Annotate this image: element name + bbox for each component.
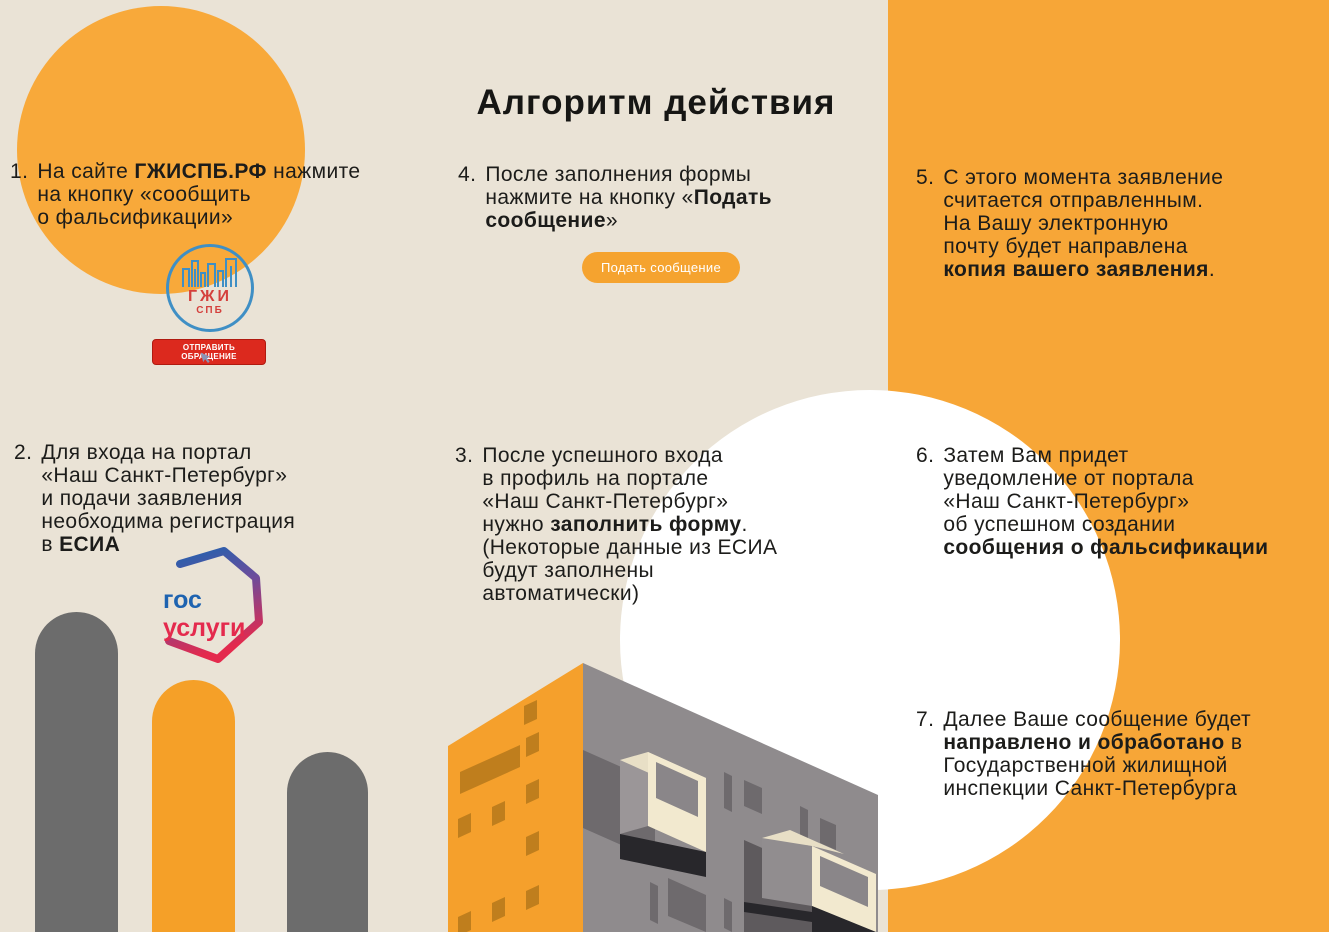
step-text: Для входа на портал«Наш Санкт-Петербург»… [41,441,295,556]
chart-bar-gray-2 [287,752,368,932]
step-1: 1. На сайте ГЖИСПБ.РФ нажмитена кнопку «… [10,160,450,229]
step-number: 7. [916,708,934,800]
step-2: 2. Для входа на портал«Наш Санкт-Петербу… [14,441,414,556]
step-text: Далее Ваше сообщение будетнаправлено и о… [943,708,1251,800]
step-text: После заполнения формынажмите на кнопку … [485,163,772,232]
gzhi-logo-title: ГЖИ [169,288,251,305]
gzhi-logo-subtitle: СПБ [169,305,251,316]
step-text: С этого момента заявлениесчитается отпра… [943,166,1223,281]
cursor-icon [201,351,213,364]
building-orange-face [448,663,583,932]
decorative-orange-circle [17,6,305,294]
step-3: 3. После успешного входав профиль на пор… [455,444,875,605]
chart-bar-orange [152,680,235,932]
gzhi-spb-logo: ГЖИ СПБ [166,244,254,332]
gosuslugi-logo: гос услуги [146,546,266,666]
gosuslugi-text-line1: гос [163,586,202,614]
step-6: 6. Затем Вам придетуведомление от портал… [916,444,1326,559]
step-number: 6. [916,444,934,559]
step-number: 4. [458,163,476,232]
gosuslugi-text-line2: услуги [163,614,245,642]
submit-message-button[interactable]: Подать сообщение [582,252,740,283]
step-number: 2. [14,441,32,556]
step-number: 5. [916,166,934,281]
step-text: Затем Вам придетуведомление от портала«Н… [943,444,1268,559]
city-skyline-icon [181,256,239,288]
chart-bar-gray-1 [35,612,118,932]
step-number: 3. [455,444,473,605]
step-5: 5. С этого момента заявлениесчитается от… [916,166,1326,281]
step-7: 7. Далее Ваше сообщение будетнаправлено … [916,708,1326,800]
step-number: 1. [10,160,28,229]
building-gray-face [583,663,878,932]
infographic-page: Алгоритм действия 1. На сайте ГЖИСПБ.РФ … [0,0,1329,932]
building-illustration [448,655,888,932]
page-title: Алгоритм действия [400,83,912,123]
step-text: После успешного входав профиль на портал… [482,444,777,605]
step-text: На сайте ГЖИСПБ.РФ нажмитена кнопку «соо… [37,160,360,229]
step-4: 4. После заполнения формынажмите на кноп… [458,163,868,232]
